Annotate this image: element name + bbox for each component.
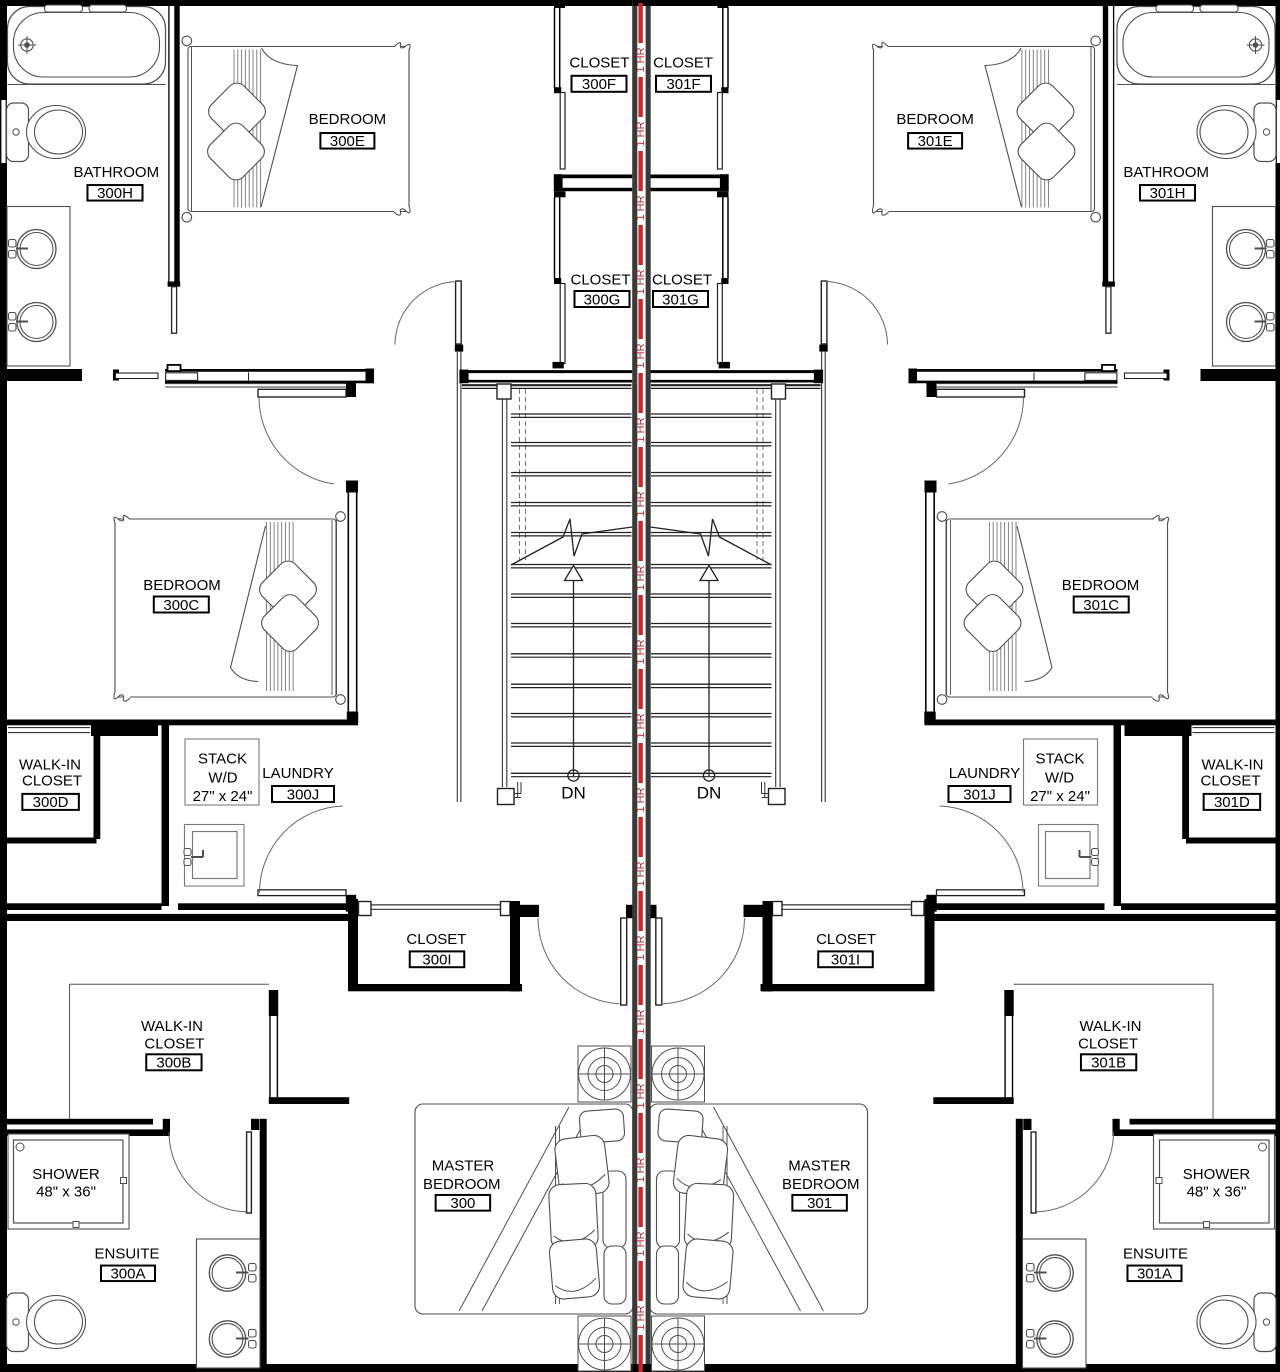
svg-text:301F: 301F: [666, 76, 700, 93]
svg-text:1 HR: 1 HR: [635, 1009, 647, 1034]
svg-text:BEDROOM: BEDROOM: [309, 111, 387, 128]
svg-text:301B: 301B: [1091, 1055, 1126, 1072]
svg-text:1 HR: 1 HR: [635, 861, 647, 886]
svg-text:27" x 24": 27" x 24": [193, 788, 253, 805]
svg-text:BEDROOM: BEDROOM: [896, 111, 974, 128]
svg-text:WALK-IN: WALK-IN: [141, 1018, 203, 1035]
svg-text:301G: 301G: [662, 291, 699, 308]
svg-text:1 HR: 1 HR: [635, 639, 647, 664]
svg-text:CLOSET: CLOSET: [144, 1035, 204, 1052]
svg-text:BEDROOM: BEDROOM: [143, 577, 221, 594]
svg-text:48" x 36": 48" x 36": [36, 1183, 96, 1200]
svg-text:1 HR: 1 HR: [635, 491, 647, 516]
svg-text:1 HR: 1 HR: [635, 787, 647, 812]
svg-text:1 HR: 1 HR: [635, 1231, 647, 1256]
svg-text:300: 300: [450, 1195, 475, 1212]
svg-text:1 HR: 1 HR: [635, 1305, 647, 1330]
svg-text:BEDROOM: BEDROOM: [782, 1176, 860, 1193]
svg-text:1 HR: 1 HR: [635, 195, 647, 220]
svg-text:1 HR: 1 HR: [635, 269, 647, 294]
svg-text:W/D: W/D: [208, 769, 237, 786]
svg-text:1 HR: 1 HR: [635, 47, 647, 72]
svg-text:CLOSET: CLOSET: [816, 931, 876, 948]
svg-text:STACK: STACK: [1036, 750, 1085, 767]
svg-text:301A: 301A: [1137, 1266, 1172, 1283]
svg-text:BATHROOM: BATHROOM: [1123, 164, 1209, 181]
svg-text:300G: 300G: [584, 291, 621, 308]
svg-text:300I: 300I: [422, 952, 451, 969]
svg-text:300E: 300E: [330, 133, 365, 150]
svg-text:CLOSET: CLOSET: [22, 773, 82, 790]
svg-text:48" x 36": 48" x 36": [1187, 1183, 1247, 1200]
svg-text:300B: 300B: [156, 1055, 191, 1072]
svg-text:300D: 300D: [33, 794, 69, 811]
svg-text:BATHROOM: BATHROOM: [74, 164, 160, 181]
svg-text:SHOWER: SHOWER: [1183, 1166, 1251, 1183]
svg-text:MASTER: MASTER: [432, 1157, 495, 1174]
svg-text:300C: 300C: [163, 597, 199, 614]
svg-text:301C: 301C: [1083, 597, 1119, 614]
svg-text:DN: DN: [697, 784, 722, 803]
svg-text:301: 301: [807, 1195, 832, 1212]
svg-text:1 HR: 1 HR: [635, 713, 647, 738]
svg-text:301H: 301H: [1150, 185, 1186, 202]
svg-text:CLOSET: CLOSET: [1078, 1035, 1138, 1052]
svg-text:CLOSET: CLOSET: [569, 54, 629, 71]
svg-text:1 HR: 1 HR: [635, 417, 647, 442]
svg-text:MASTER: MASTER: [788, 1157, 851, 1174]
svg-text:300F: 300F: [582, 76, 616, 93]
svg-text:301I: 301I: [831, 952, 860, 969]
svg-text:ENSUITE: ENSUITE: [1123, 1245, 1188, 1262]
svg-text:1 HR: 1 HR: [635, 1157, 647, 1182]
svg-text:LAUNDRY: LAUNDRY: [949, 765, 1020, 782]
svg-text:WALK-IN: WALK-IN: [1080, 1018, 1142, 1035]
svg-text:301J: 301J: [963, 786, 996, 803]
svg-text:1 HR: 1 HR: [635, 935, 647, 960]
svg-text:ENSUITE: ENSUITE: [94, 1245, 159, 1262]
svg-text:DN: DN: [561, 784, 586, 803]
svg-text:WALK-IN: WALK-IN: [1202, 757, 1264, 774]
svg-text:300A: 300A: [110, 1266, 145, 1283]
svg-text:CLOSET: CLOSET: [570, 272, 630, 289]
svg-text:27" x 24": 27" x 24": [1030, 788, 1090, 805]
svg-text:1 HR: 1 HR: [635, 121, 647, 146]
svg-text:BEDROOM: BEDROOM: [1062, 577, 1140, 594]
svg-text:301E: 301E: [918, 133, 953, 150]
svg-text:300H: 300H: [97, 185, 133, 202]
svg-text:1 HR: 1 HR: [635, 565, 647, 590]
svg-text:W/D: W/D: [1045, 769, 1074, 786]
svg-text:CLOSET: CLOSET: [1200, 773, 1260, 790]
svg-text:SHOWER: SHOWER: [32, 1166, 100, 1183]
svg-text:1 HR: 1 HR: [635, 1083, 647, 1108]
svg-text:STACK: STACK: [198, 750, 247, 767]
svg-text:CLOSET: CLOSET: [406, 931, 466, 948]
svg-text:CLOSET: CLOSET: [653, 54, 713, 71]
svg-text:WALK-IN: WALK-IN: [19, 757, 81, 774]
svg-text:1 HR: 1 HR: [635, 343, 647, 368]
svg-text:BEDROOM: BEDROOM: [423, 1176, 501, 1193]
svg-text:LAUNDRY: LAUNDRY: [262, 765, 333, 782]
svg-text:301D: 301D: [1214, 794, 1250, 811]
svg-text:300J: 300J: [287, 786, 320, 803]
svg-text:CLOSET: CLOSET: [652, 272, 712, 289]
